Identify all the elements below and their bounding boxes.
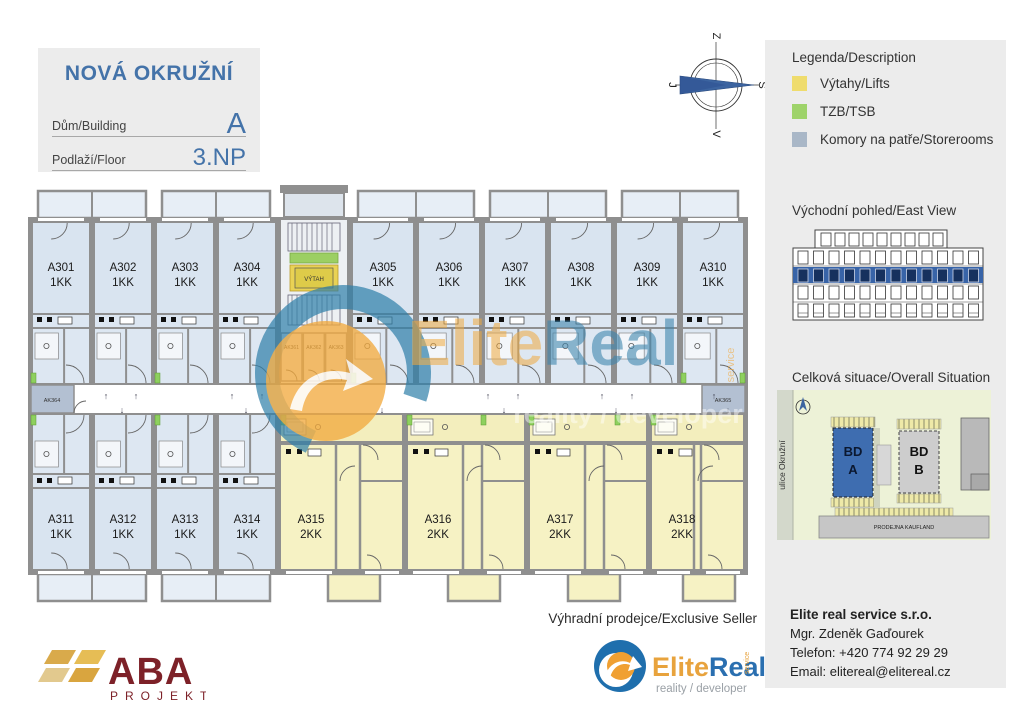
storeroom-label: AK364 xyxy=(44,398,61,404)
project-title: NOVÁ OKRUŽNÍ xyxy=(38,62,260,86)
svg-text:1KK: 1KK xyxy=(174,529,196,541)
unit-label: A313 xyxy=(172,514,199,526)
unit-label: A306 xyxy=(436,262,463,274)
floor-label: Podlaží/Floor xyxy=(52,153,126,170)
svg-text:↓: ↓ xyxy=(502,405,507,415)
tzb-color-swatch xyxy=(792,104,807,119)
svg-text:↑: ↑ xyxy=(104,391,109,401)
unit-label: A310 xyxy=(700,262,727,274)
unit-label: A312 xyxy=(110,514,137,526)
logo-tagline: reality / developer xyxy=(656,683,747,695)
floor-row: Podlaží/Floor 3.NP xyxy=(52,140,246,171)
street-label: ulice Okružní xyxy=(777,440,787,490)
svg-text:1KK: 1KK xyxy=(112,529,134,541)
unit-label: A302 xyxy=(110,262,137,274)
seller-email: Email: elitereal@elitereal.cz xyxy=(790,662,951,681)
building-b-label: BD xyxy=(910,444,929,459)
parking-strip xyxy=(835,508,953,516)
unit-label: A315 xyxy=(298,514,325,526)
svg-text:↓: ↓ xyxy=(120,405,125,415)
parking-strip xyxy=(897,494,941,503)
svg-text:1KK: 1KK xyxy=(174,277,196,289)
kaufland-label: PRODEJNA KAUFLAND xyxy=(874,525,935,531)
unit-A313: A3131KK xyxy=(157,415,213,574)
unit-label: A314 xyxy=(234,514,261,526)
tzb-marker xyxy=(681,373,686,383)
situation-map: ulice Okružní BD A BD B PRODEJNA KAUFLAN… xyxy=(773,390,991,542)
situation-heading: Celková situace/Overall Situation xyxy=(792,370,990,385)
svg-text:1KK: 1KK xyxy=(50,529,72,541)
lift-tzb xyxy=(290,253,338,263)
tzb-marker xyxy=(31,415,36,425)
watermark-text: EliteReal xyxy=(408,307,678,379)
svg-text:↑: ↑ xyxy=(134,391,139,401)
unit-label: A318 xyxy=(669,514,696,526)
floor-value: 3.NP xyxy=(193,146,246,170)
legend-heading: Legenda/Description xyxy=(792,50,916,65)
building-a-label: BD xyxy=(844,444,863,459)
parking-strip xyxy=(831,417,875,427)
svg-text:2KK: 2KK xyxy=(427,529,449,541)
unit-A317: A3172KK xyxy=(530,415,646,574)
building-value: A xyxy=(227,112,246,136)
parking-strip xyxy=(831,498,875,507)
compass-rose-icon: Z J S V xyxy=(666,28,766,140)
svg-text:1KK: 1KK xyxy=(236,277,258,289)
unit-A316: A3162KK xyxy=(408,415,524,574)
seller-info: Elite real service s.r.o. Mgr. Zdeněk Ga… xyxy=(790,605,951,681)
unit-label: A301 xyxy=(48,262,75,274)
seller-contact: Mgr. Zdeněk Gaďourek xyxy=(790,624,951,643)
building-label: Dům/Building xyxy=(52,119,126,136)
unit-A318: A3182KK xyxy=(652,415,743,574)
svg-text:1KK: 1KK xyxy=(112,277,134,289)
logo-real: Real xyxy=(709,652,766,682)
floor-plan: A3011KKA3021KKA3031KKA3041KKA3051KKA3061… xyxy=(28,183,750,619)
unit-label: A317 xyxy=(547,514,574,526)
unit-label: A309 xyxy=(634,262,661,274)
unit-label: A311 xyxy=(48,514,74,526)
unit-A314: A3141KK xyxy=(219,415,275,574)
svg-text:↓: ↓ xyxy=(380,405,385,415)
sidebar: Legenda/Description Výtahy/Lifts TZB/TSB… xyxy=(765,40,1006,688)
logo-service: service xyxy=(744,652,751,674)
elitereal-logo: EliteReal service reality / developer xyxy=(592,632,772,702)
east-view-heading: Východní pohled/East View xyxy=(792,203,956,218)
balcony xyxy=(448,574,500,601)
unit-label: A307 xyxy=(502,262,529,274)
unit-label: A304 xyxy=(234,262,261,274)
svg-text:↓: ↓ xyxy=(244,405,249,415)
svg-text:1KK: 1KK xyxy=(504,277,526,289)
tzb-marker xyxy=(155,415,160,425)
exclusive-seller-heading: Výhradní prodejce/Exclusive Seller xyxy=(537,611,757,626)
legend-label: Komory na patře/Storerooms xyxy=(820,132,993,147)
svg-text:2KK: 2KK xyxy=(549,529,571,541)
unit-label: A308 xyxy=(568,262,595,274)
aba-sub: PROJEKT xyxy=(110,689,206,703)
unit-A302: A3021KK xyxy=(95,218,151,383)
compass-west: Z xyxy=(710,33,722,40)
svg-text:1KK: 1KK xyxy=(570,277,592,289)
unit-A312: A3121KK xyxy=(95,415,151,574)
tzb-marker xyxy=(740,373,745,383)
parking-strip xyxy=(897,419,941,429)
aba-name: ABA xyxy=(108,651,193,693)
svg-text:1KK: 1KK xyxy=(702,277,724,289)
unit-A311: A3111KK xyxy=(33,415,89,574)
tzb-marker xyxy=(407,415,412,425)
svg-text:1KK: 1KK xyxy=(50,277,72,289)
unit-label: A316 xyxy=(425,514,452,526)
svg-text:1KK: 1KK xyxy=(636,277,658,289)
legend-label: Výtahy/Lifts xyxy=(820,76,890,91)
tzb-marker xyxy=(481,415,486,425)
svg-text:service: service xyxy=(725,348,737,383)
compass-south: J xyxy=(666,82,678,88)
svg-text:2KK: 2KK xyxy=(671,529,693,541)
legend-item-lifts: Výtahy/Lifts xyxy=(792,76,890,91)
title-block: NOVÁ OKRUŽNÍ Dům/Building A Podlaží/Floo… xyxy=(38,48,260,172)
svg-text:↑: ↑ xyxy=(230,391,235,401)
seller-company: Elite real service s.r.o. xyxy=(790,605,951,624)
unit-label: A303 xyxy=(172,262,199,274)
storeroom-color-swatch xyxy=(792,132,807,147)
balcony xyxy=(568,574,620,601)
aba-projekt-logo: ABA PROJEKT xyxy=(36,640,206,704)
balcony xyxy=(328,574,380,601)
svg-text:1KK: 1KK xyxy=(438,277,460,289)
east-view-drawing xyxy=(785,224,987,326)
unit-A301: A3011KK xyxy=(33,218,89,383)
tzb-marker xyxy=(31,373,36,383)
svg-text:B: B xyxy=(914,462,923,477)
balcony xyxy=(683,574,735,601)
svg-text:1KK: 1KK xyxy=(372,277,394,289)
svg-text:1KK: 1KK xyxy=(236,529,258,541)
seller-phone: Telefon: +420 774 92 29 29 xyxy=(790,643,951,662)
lift-label: VÝTAH xyxy=(304,276,324,283)
building-row: Dům/Building A xyxy=(52,104,246,137)
unit-A303: A3031KK xyxy=(157,218,213,383)
svg-text:2KK: 2KK xyxy=(300,529,322,541)
svg-text:↑: ↑ xyxy=(486,391,491,401)
lift-color-swatch xyxy=(792,76,807,91)
legend-item-tzb: TZB/TSB xyxy=(792,104,876,119)
compass-east: V xyxy=(710,130,722,138)
logo-elite: Elite xyxy=(652,652,709,682)
svg-text:reality / developer: reality / developer xyxy=(513,399,743,429)
unit-label: A305 xyxy=(370,262,397,274)
tzb-marker xyxy=(155,373,160,383)
svg-text:A: A xyxy=(848,462,858,477)
legend-label: TZB/TSB xyxy=(820,104,876,119)
legend-item-storerooms: Komory na patře/Storerooms xyxy=(792,132,993,147)
floorplan-sheet: { "header": { "title": "NOVÁ OKRUŽNÍ", "… xyxy=(0,0,1024,724)
